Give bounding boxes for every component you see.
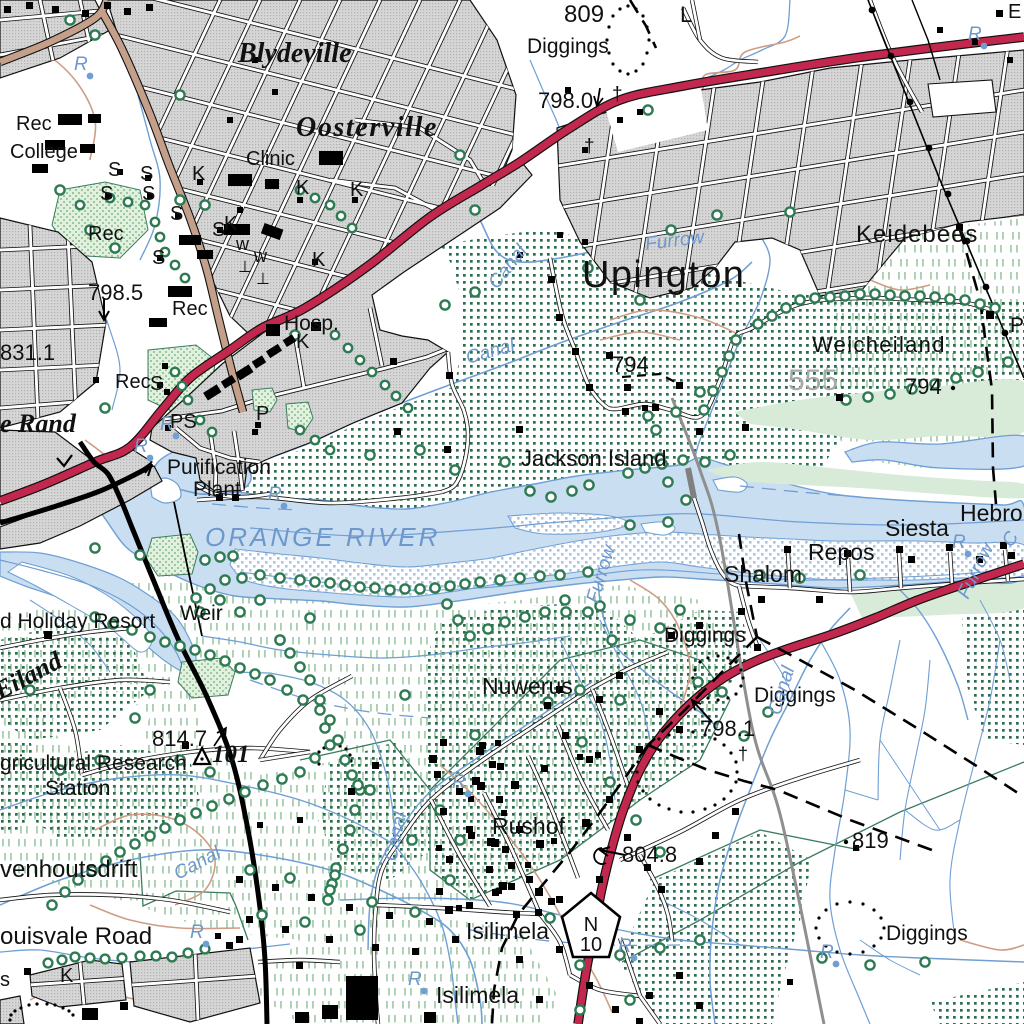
svg-text:S: S xyxy=(100,183,113,205)
svg-text:Weir: Weir xyxy=(180,602,223,625)
svg-text:Keidebees: Keidebees xyxy=(856,221,978,248)
svg-text:10: 10 xyxy=(580,934,602,956)
svg-text:e Rand: e Rand xyxy=(0,409,77,438)
svg-text:Hosp.: Hosp. xyxy=(284,312,339,335)
svg-text:P: P xyxy=(256,403,269,425)
svg-text:Rushof: Rushof xyxy=(492,813,565,839)
svg-text:N: N xyxy=(584,914,598,936)
svg-text:Oosterville: Oosterville xyxy=(296,112,438,143)
svg-text:101: 101 xyxy=(212,741,250,768)
svg-text:College: College xyxy=(10,141,78,163)
svg-text:K: K xyxy=(350,179,364,201)
svg-text:794: 794 xyxy=(905,374,942,399)
svg-text:798.0: 798.0 xyxy=(538,88,593,113)
svg-text:R: R xyxy=(408,969,422,990)
svg-text:Plant: Plant xyxy=(193,478,241,501)
svg-text:Repos: Repos xyxy=(808,539,874,565)
svg-text:R: R xyxy=(452,772,466,793)
svg-text:Diggings: Diggings xyxy=(664,624,746,647)
svg-text:Blydeville: Blydeville xyxy=(237,38,352,69)
svg-text:R: R xyxy=(618,936,632,957)
svg-text:S: S xyxy=(170,203,183,225)
svg-text:Siesta: Siesta xyxy=(885,515,949,541)
svg-text:w: w xyxy=(253,246,268,266)
svg-text:P: P xyxy=(1010,314,1024,337)
svg-text:gricultural Research: gricultural Research xyxy=(0,752,187,775)
svg-text:S: S xyxy=(212,219,225,241)
svg-text:Weicheiland: Weicheiland xyxy=(812,332,946,357)
svg-text:K: K xyxy=(296,331,310,353)
svg-text:ORANGE RIVER: ORANGE RIVER xyxy=(205,522,440,552)
svg-text:Diggings: Diggings xyxy=(886,922,968,945)
svg-text:venhoutsdrift: venhoutsdrift xyxy=(0,856,138,883)
svg-text:S: S xyxy=(108,159,121,181)
svg-text:K: K xyxy=(296,177,310,199)
svg-text:S: S xyxy=(140,163,153,185)
svg-text:⊥: ⊥ xyxy=(238,259,252,276)
svg-text:†: † xyxy=(612,84,623,105)
svg-text:K: K xyxy=(192,163,206,185)
svg-text:S: S xyxy=(150,373,163,395)
svg-text:Jackson Island: Jackson Island xyxy=(521,446,667,471)
svg-text:Nuwerus: Nuwerus xyxy=(482,673,573,699)
svg-text:Rec: Rec xyxy=(88,223,124,245)
svg-text:R: R xyxy=(968,24,982,45)
svg-text:s: s xyxy=(0,969,10,991)
svg-text:Rec: Rec xyxy=(115,371,151,393)
svg-text:d Holiday Resort: d Holiday Resort xyxy=(0,610,155,633)
svg-text:Isilimela: Isilimela xyxy=(436,982,519,1008)
svg-text:R: R xyxy=(820,942,834,963)
svg-text:PS: PS xyxy=(170,411,197,433)
svg-text:Station: Station xyxy=(45,777,110,800)
svg-text:Hebron: Hebron xyxy=(960,500,1024,526)
svg-text:831.1: 831.1 xyxy=(0,340,55,365)
svg-text:798.5: 798.5 xyxy=(88,280,143,305)
svg-text:E: E xyxy=(1008,1,1021,23)
svg-text:Purification: Purification xyxy=(167,456,271,479)
svg-text:R: R xyxy=(190,922,204,943)
svg-text:Diggings: Diggings xyxy=(527,35,609,58)
svg-text:Shalom: Shalom xyxy=(724,561,802,587)
svg-text:†: † xyxy=(738,744,748,764)
svg-text:w: w xyxy=(235,234,250,254)
svg-text:†: † xyxy=(584,136,595,157)
svg-text:R: R xyxy=(268,484,282,505)
svg-text:R: R xyxy=(952,532,966,553)
svg-text:S: S xyxy=(152,247,165,269)
svg-text:ouisvale Road: ouisvale Road xyxy=(0,923,152,950)
svg-text:809: 809 xyxy=(564,1,604,28)
svg-text:S: S xyxy=(142,183,155,205)
svg-text:794: 794 xyxy=(612,352,649,377)
svg-text:819: 819 xyxy=(852,828,889,853)
svg-text:Upington: Upington xyxy=(582,254,745,296)
svg-text:798.1: 798.1 xyxy=(700,716,755,741)
svg-text:Isilimela: Isilimela xyxy=(466,918,549,944)
svg-text:804.8: 804.8 xyxy=(622,842,677,867)
svg-text:Clinic: Clinic xyxy=(246,148,295,170)
svg-text:K: K xyxy=(224,213,238,235)
svg-text:K: K xyxy=(60,965,74,987)
svg-text:⊥: ⊥ xyxy=(256,271,270,288)
svg-text:814.7: 814.7 xyxy=(152,726,207,751)
svg-text:555: 555 xyxy=(788,364,838,397)
svg-text:Rec: Rec xyxy=(16,113,52,135)
svg-text:R: R xyxy=(74,54,88,75)
svg-text:R: R xyxy=(134,436,148,457)
svg-text:Rec: Rec xyxy=(172,298,208,320)
svg-text:L: L xyxy=(680,2,692,27)
svg-text:K: K xyxy=(312,249,326,271)
